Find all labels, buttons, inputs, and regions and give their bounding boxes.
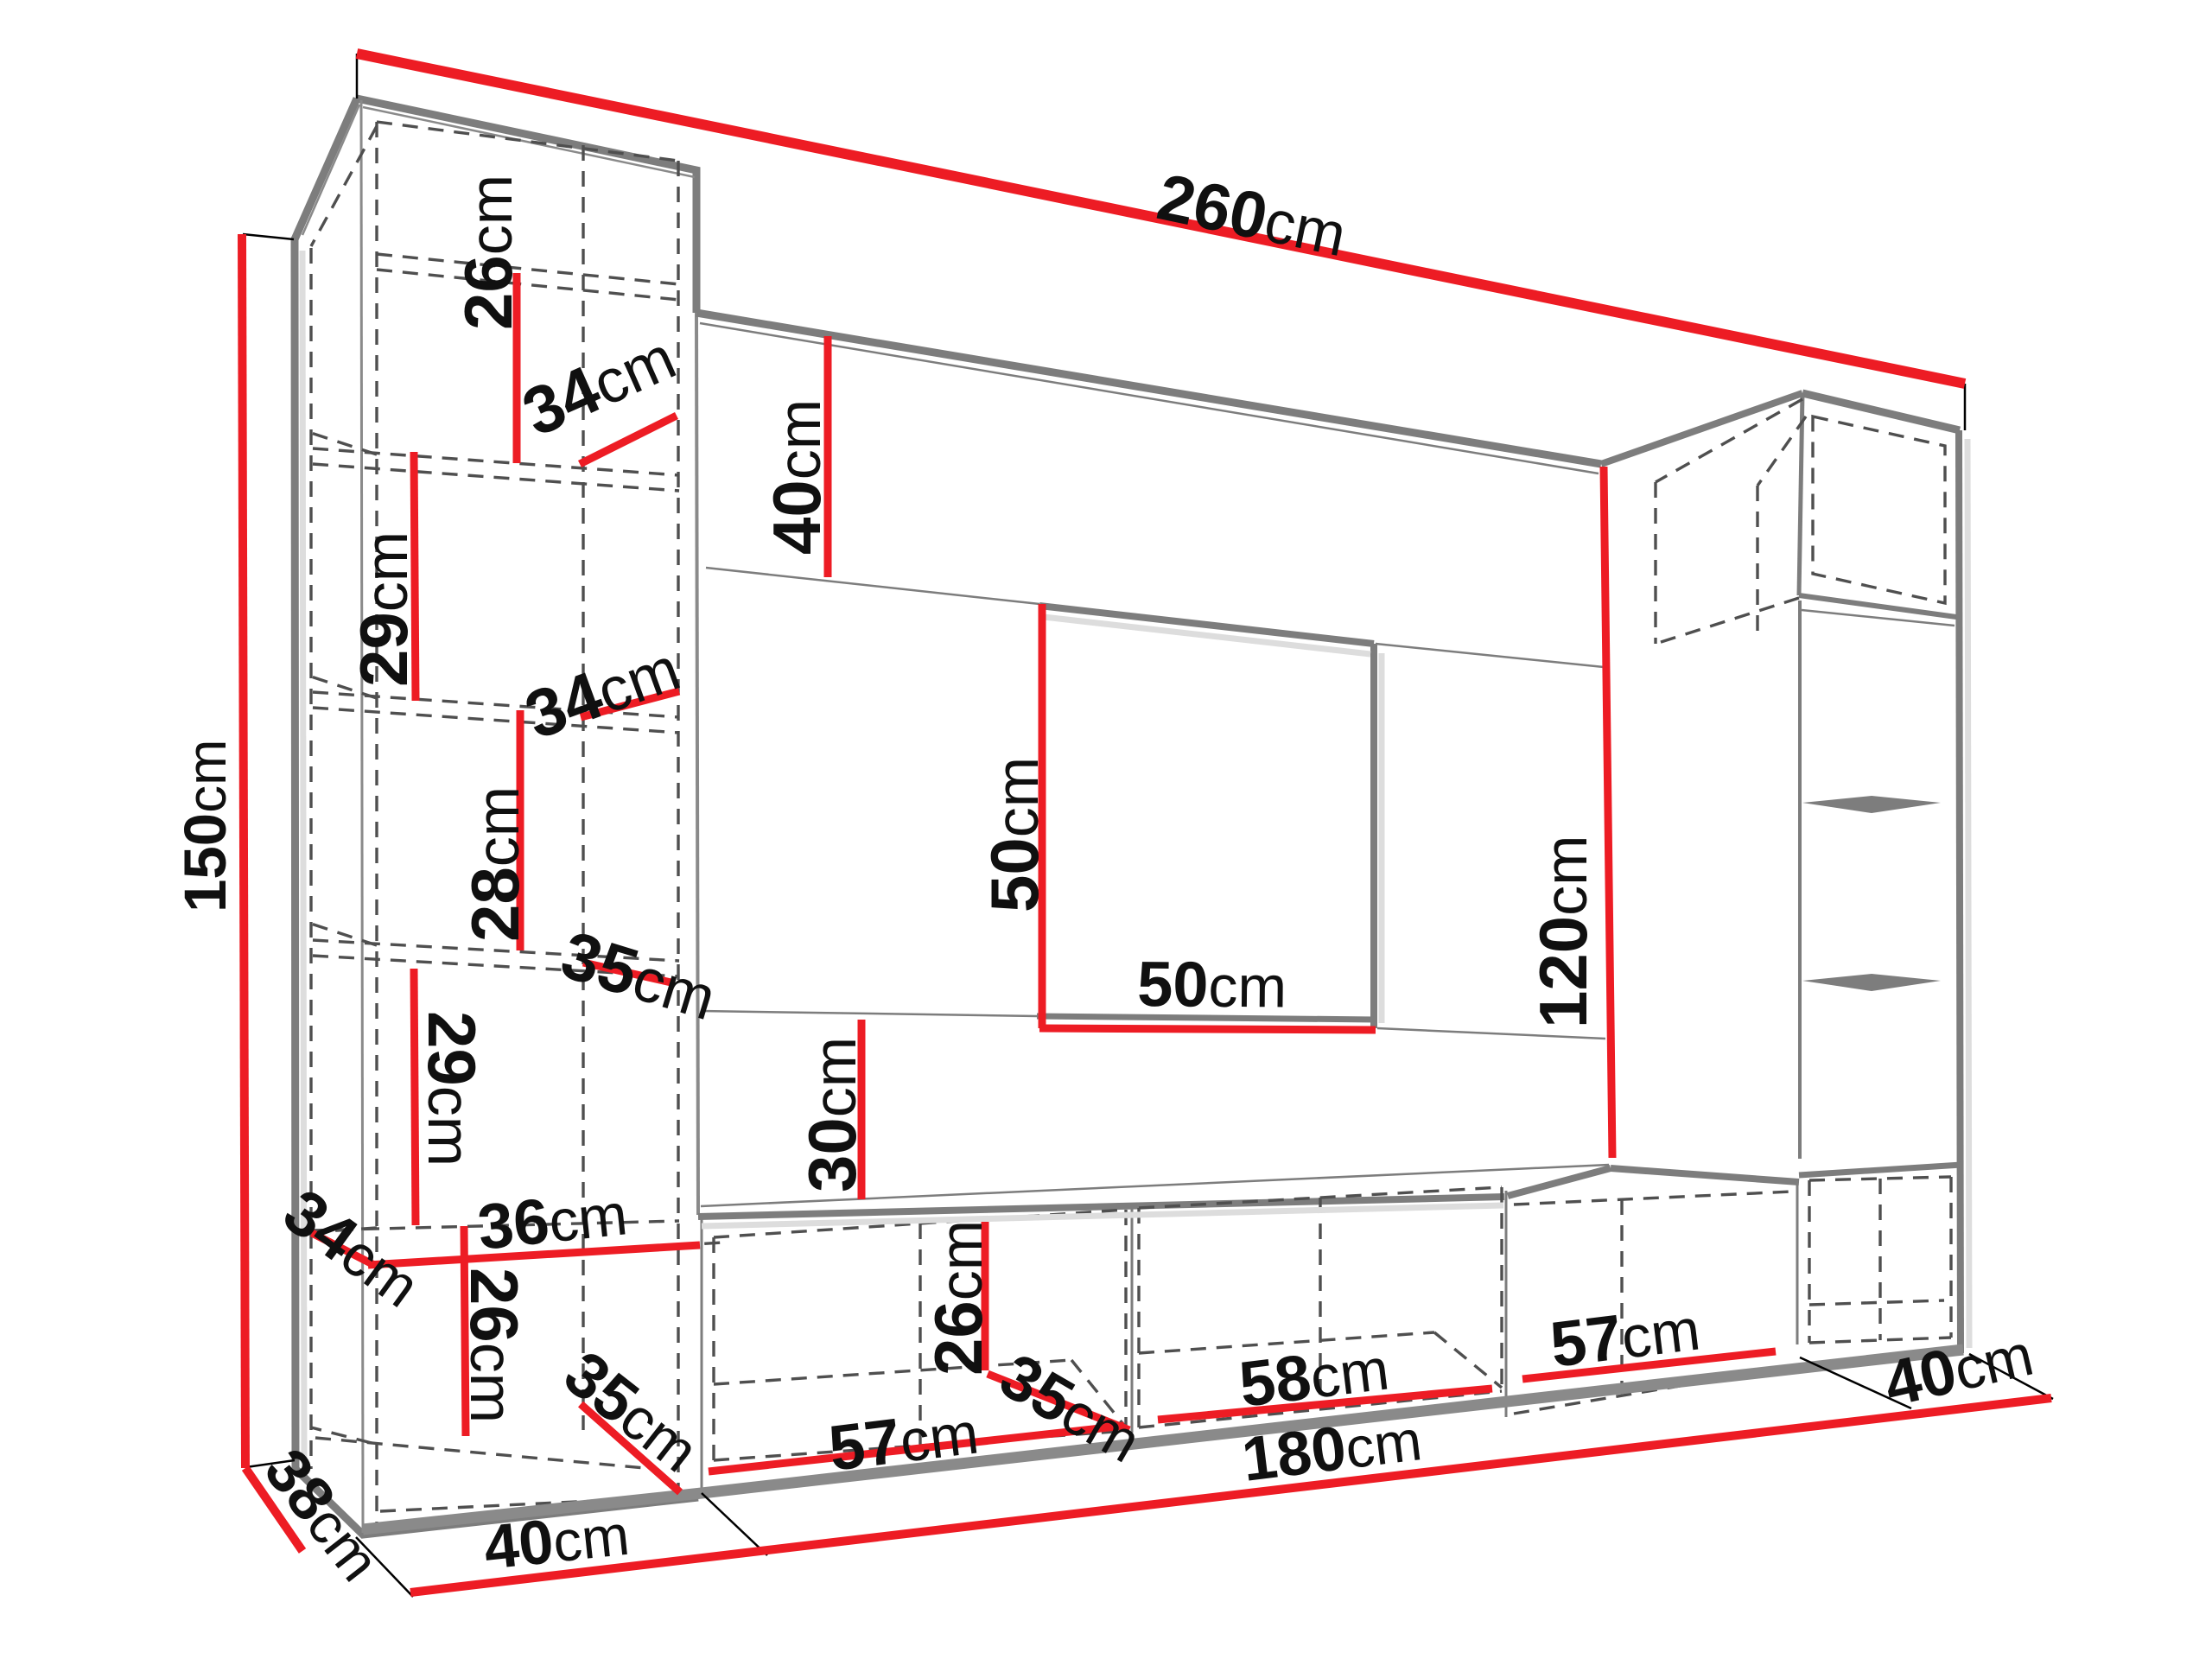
svg-text:57cm: 57cm	[1547, 1291, 1704, 1380]
svg-text:26cm: 26cm	[456, 1268, 532, 1423]
svg-text:260cm: 260cm	[1152, 160, 1353, 270]
svg-text:150cm: 150cm	[172, 740, 238, 912]
svg-text:34cm: 34cm	[516, 628, 690, 753]
svg-text:30cm: 30cm	[794, 1037, 870, 1192]
svg-text:50cm: 50cm	[1137, 948, 1287, 1021]
svg-text:26cm: 26cm	[450, 175, 526, 330]
svg-text:58cm: 58cm	[1236, 1331, 1393, 1420]
svg-text:57cm: 57cm	[825, 1395, 982, 1484]
svg-text:29cm: 29cm	[346, 531, 422, 687]
svg-text:34cm: 34cm	[512, 317, 686, 450]
svg-text:120cm: 120cm	[1525, 836, 1601, 1028]
svg-text:50cm: 50cm	[976, 757, 1052, 912]
svg-text:29cm: 29cm	[414, 1011, 490, 1166]
svg-text:28cm: 28cm	[457, 786, 533, 942]
svg-text:180cm: 180cm	[1238, 1404, 1425, 1495]
svg-text:26cm: 26cm	[920, 1220, 996, 1376]
svg-text:40cm: 40cm	[759, 399, 835, 555]
